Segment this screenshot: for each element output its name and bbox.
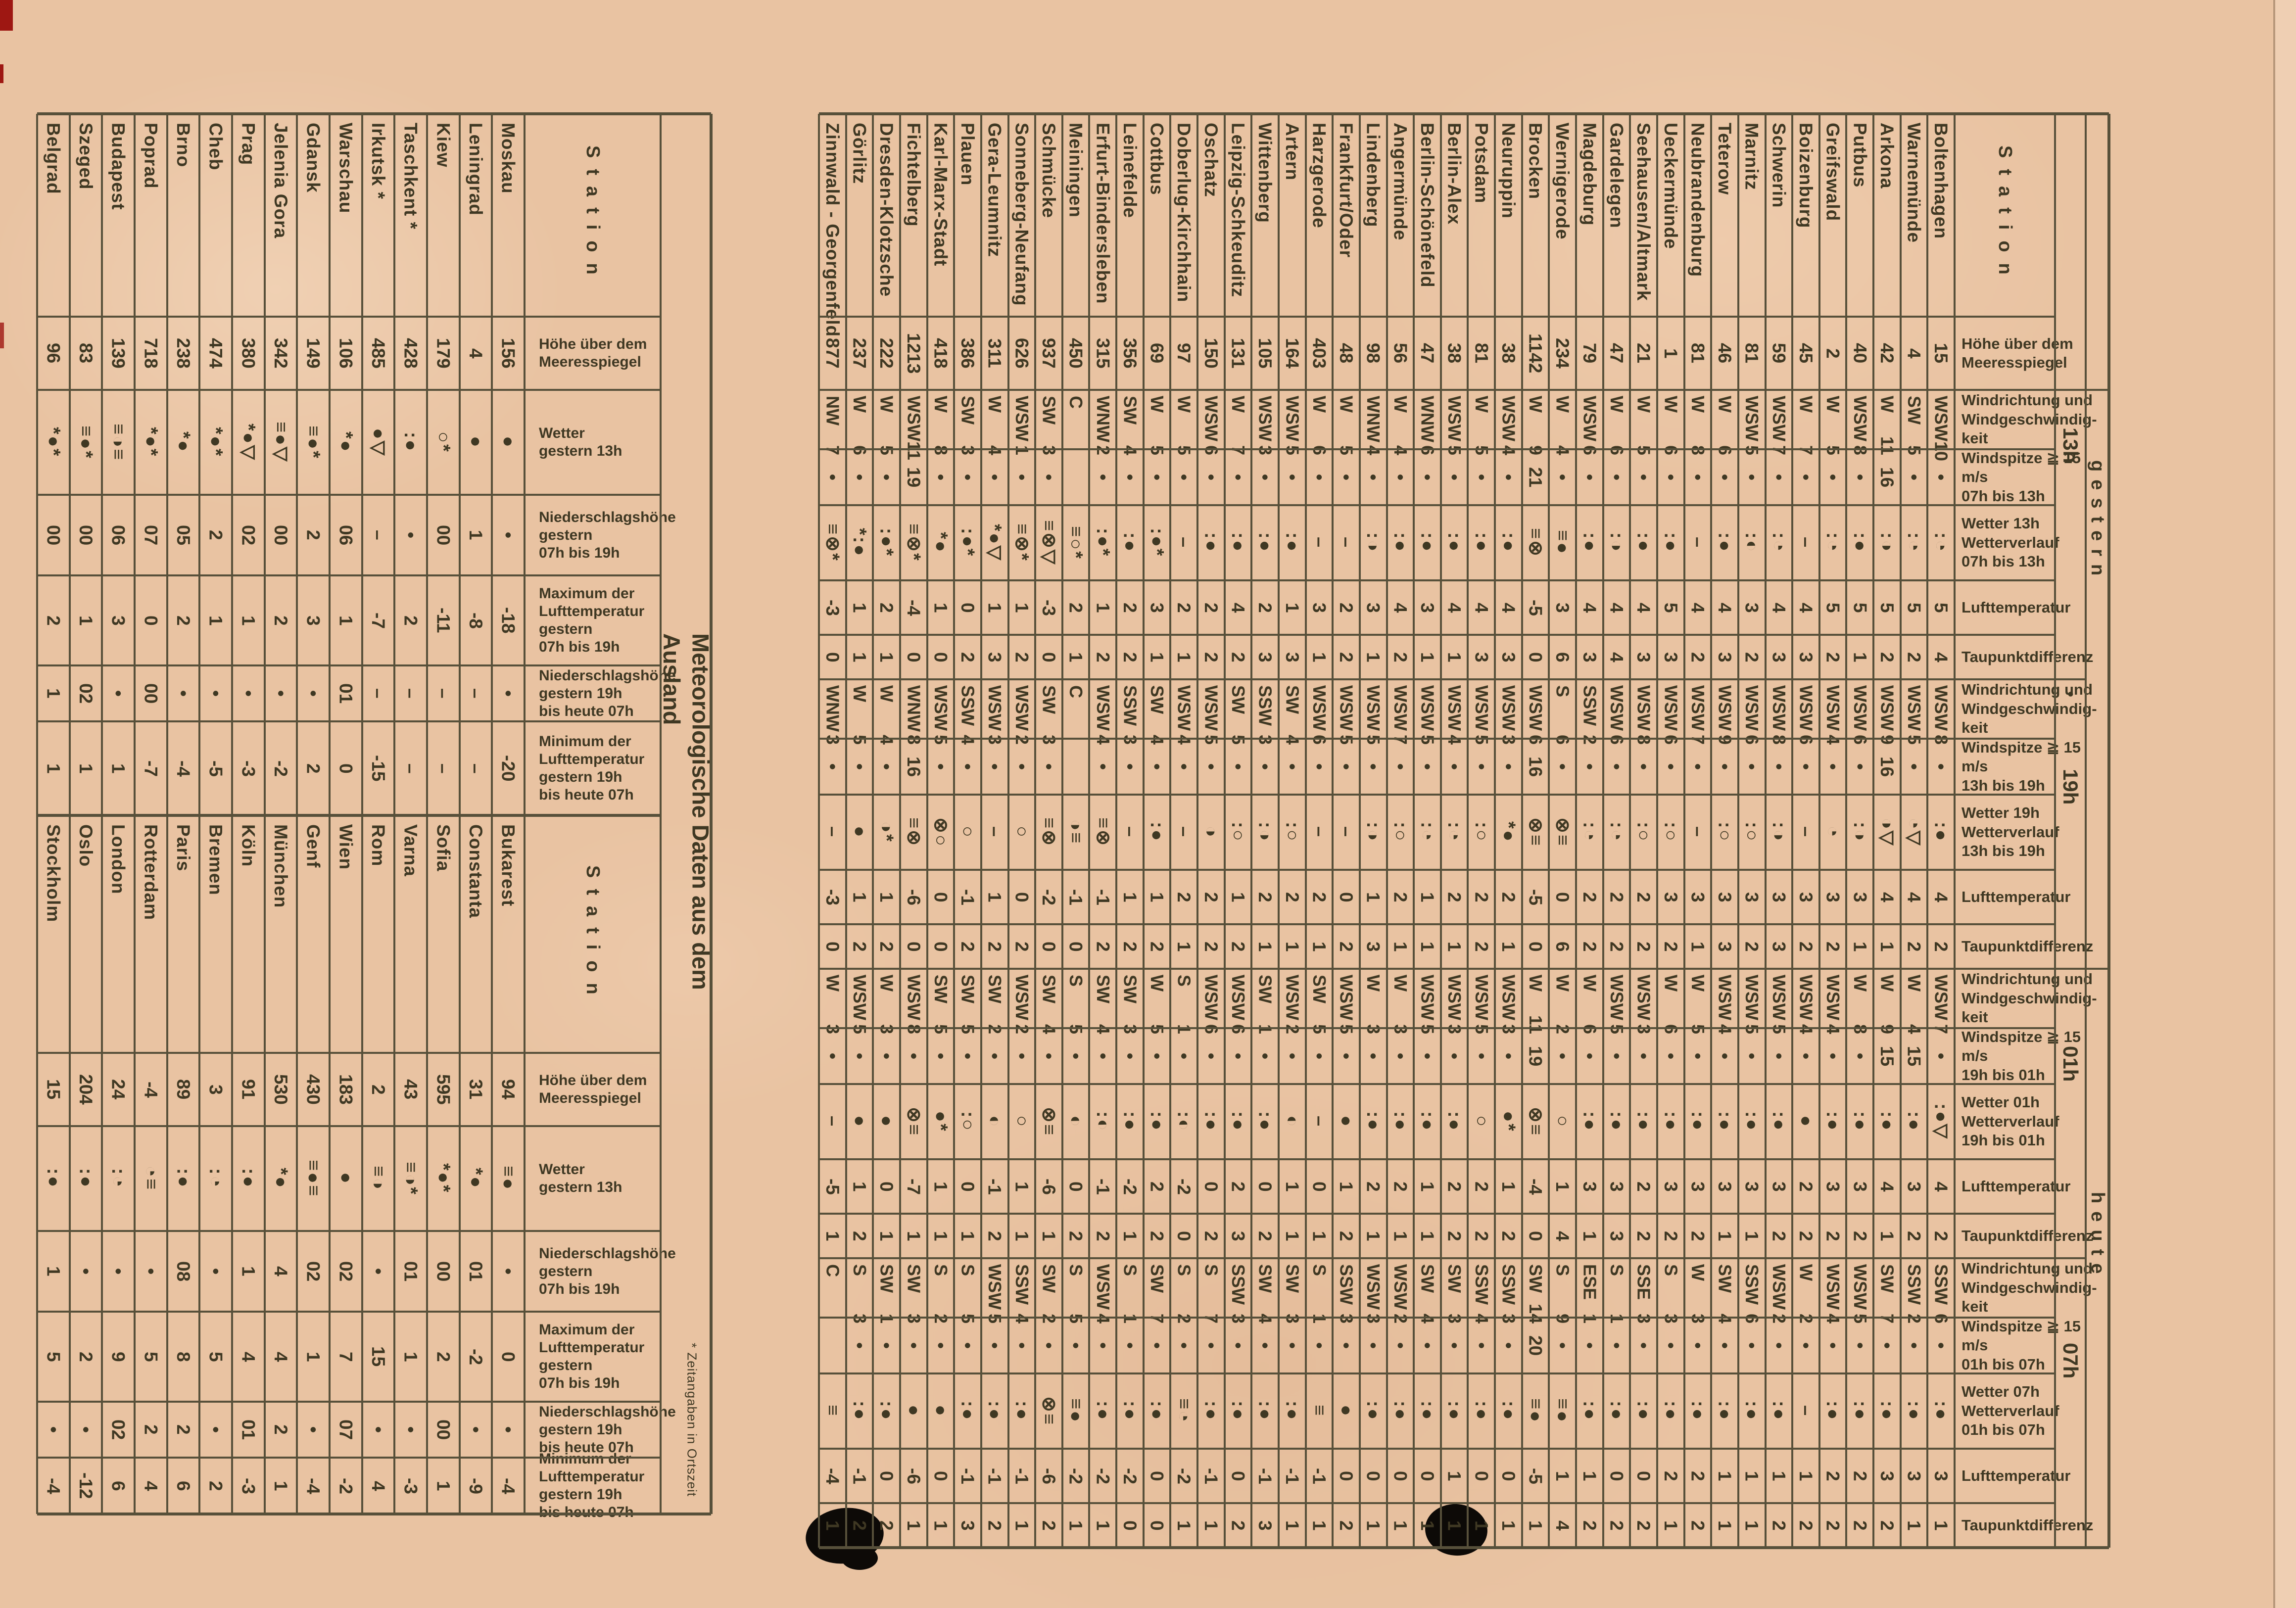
- data-cell-taupunktdifferenz: 2: [1089, 924, 1116, 969]
- data-cell-lufttemperatur: 1: [1089, 580, 1116, 635]
- foreign-hoehe-label-lower: Höhe über dem Meeresspiegel: [532, 1053, 661, 1126]
- data-cell-lufttemperatur: 1: [927, 1159, 955, 1214]
- data-cell-windspitze: •: [1225, 739, 1252, 795]
- data-cell-wetter: ≡◑*: [394, 1126, 427, 1231]
- data-cell-wetter: :○: [954, 1084, 981, 1159]
- data-cell-windspitze: •: [1251, 1028, 1279, 1084]
- grid-line-h: [37, 1052, 661, 1054]
- data-cell-taupunktdifferenz: 1: [1008, 1214, 1036, 1258]
- station-name: Magdeburg: [1576, 114, 1603, 326]
- wind-direction: W: [1229, 396, 1247, 413]
- data-cell-taupunktdifferenz: 1: [927, 1214, 955, 1258]
- grid-line-h: [819, 448, 2055, 450]
- wind-direction: WSW: [1391, 685, 1409, 731]
- data-cell-niederschlag-1907: •: [70, 1402, 102, 1458]
- data-cell-windspitze: •: [1630, 739, 1657, 795]
- station-name: Doberlug-Kirchhain: [1170, 114, 1197, 326]
- wind-direction: WSW: [1013, 685, 1031, 731]
- grid-line-h: [2055, 1257, 2086, 1259]
- group-dot: •: [2055, 679, 2086, 709]
- data-cell-wetter: :●: [981, 1373, 1008, 1449]
- wind-direction: WSW: [1310, 685, 1328, 731]
- wind-direction: WSW: [1716, 685, 1734, 731]
- data-cell-lufttemperatur: 2: [1495, 870, 1522, 924]
- data-cell-windspitze: •: [1089, 739, 1116, 795]
- data-cell-lufttemperatur: -2: [1170, 1159, 1197, 1214]
- data-cell-hoehe: 595: [427, 1053, 460, 1126]
- wind-direction: SW: [1094, 975, 1112, 1003]
- wind-direction: WSW: [1338, 975, 1355, 1020]
- data-cell-wetter: ≡◑≡: [102, 390, 135, 495]
- data-cell-windspitze: •: [1495, 1318, 1522, 1373]
- wind-direction: WSW: [1338, 685, 1355, 731]
- data-cell-wetter: :○: [1225, 795, 1252, 870]
- data-cell-niederschlag-0719: 02: [330, 1231, 362, 1312]
- data-cell-wetter: ◔▽: [1901, 795, 1928, 870]
- data-cell-wetter: –: [1792, 795, 1819, 870]
- data-cell-taupunktdifferenz: 2: [1630, 924, 1657, 969]
- data-cell-windspitze: •: [1819, 1028, 1847, 1084]
- station-name: Rom: [362, 815, 395, 1062]
- data-cell-taupunktdifferenz: 3: [1711, 635, 1738, 679]
- data-cell-wetter: –: [1684, 505, 1712, 580]
- data-cell-lufttemperatur: 2: [1306, 870, 1333, 924]
- data-cell-windspitze: •: [1766, 449, 1793, 505]
- data-cell-taupunktdifferenz: 2: [1766, 1503, 1793, 1548]
- data-cell-taupunktdifferenz: 1: [1279, 1214, 1306, 1258]
- grid-line-v: [1548, 114, 1550, 1548]
- station-name: Potsdam: [1468, 114, 1495, 326]
- data-cell-windspitze: 16: [1522, 739, 1549, 795]
- data-cell-windspitze: •: [1360, 739, 1387, 795]
- data-cell-taupunktdifferenz: 2: [1738, 635, 1766, 679]
- data-cell-wetter: :●: [1901, 1373, 1928, 1449]
- wind-direction: WSW: [1824, 975, 1842, 1020]
- data-cell-taupunktdifferenz: 1: [873, 635, 900, 679]
- data-cell-niederschlag-0719: 00: [427, 1231, 460, 1312]
- grid-line-h: [37, 1457, 661, 1459]
- data-cell-taupunktdifferenz: 0: [819, 924, 846, 969]
- wind-direction: W: [1148, 975, 1166, 992]
- wind-direction: SSW: [1743, 1264, 1761, 1305]
- data-cell-wetter: :◔: [1441, 795, 1468, 870]
- data-cell-wetter: :●: [1576, 1084, 1603, 1159]
- wind-direction: W: [1473, 396, 1490, 413]
- data-cell-lufttemperatur: -6: [900, 870, 927, 924]
- data-cell-lufttemperatur: 0: [1062, 1159, 1090, 1214]
- data-cell-taupunktdifferenz: 2: [1251, 1214, 1279, 1258]
- data-cell-niederschlag-1907: 2: [135, 1402, 167, 1458]
- wind-direction: WSW: [1716, 975, 1734, 1020]
- wind-direction: WSW: [1851, 1264, 1869, 1310]
- wind-direction: SW: [1527, 1264, 1544, 1293]
- data-cell-taupunktdifferenz: 1: [1062, 1503, 1090, 1548]
- data-cell-taupunktdifferenz: 0: [1062, 924, 1090, 969]
- data-cell-taupunktdifferenz: 0: [900, 924, 927, 969]
- wind-direction: W: [1148, 396, 1166, 413]
- data-cell-windspitze: •: [1766, 1318, 1793, 1373]
- grid-line-v: [1386, 114, 1388, 1548]
- data-cell-hoehe: 69: [1144, 317, 1171, 390]
- data-cell-lufttemperatur: -4: [1522, 1159, 1549, 1214]
- wind-direction: WSW: [905, 975, 922, 1020]
- data-cell-niederschlag-0719: •: [70, 1231, 102, 1312]
- data-cell-wetter: ●: [846, 795, 873, 870]
- data-cell-taupunktdifferenz: 1: [1901, 1503, 1928, 1548]
- data-cell-wetter: ◑*: [873, 795, 900, 870]
- data-cell-hoehe: 38: [1495, 317, 1522, 390]
- data-cell-niederschlag-1907: •: [492, 1402, 525, 1458]
- data-cell-lufttemperatur: 1: [1360, 870, 1387, 924]
- foreign-station-header-upper: Station: [525, 119, 661, 312]
- data-cell-wetter: ◑: [1197, 795, 1225, 870]
- data-cell-wetter: –: [1684, 795, 1712, 870]
- data-cell-wetter: *●: [927, 505, 955, 580]
- data-cell-wetter: :●*: [1144, 505, 1171, 580]
- data-cell-taupunktdifferenz: 2: [1225, 635, 1252, 679]
- data-cell-lufttemperatur: 1: [846, 580, 873, 635]
- data-cell-lufttemperatur: 1: [927, 580, 955, 635]
- data-cell-windspitze: •: [1495, 739, 1522, 795]
- data-cell-niederschlag-0719: 1: [460, 495, 492, 575]
- data-cell-taupunktdifferenz: 1: [1360, 635, 1387, 679]
- page-canvas: Station Höhe über dem Meeresspiegel Wind…: [0, 0, 2296, 1608]
- data-cell-windspitze: 20: [1522, 1318, 1549, 1373]
- data-cell-hoehe: 48: [1333, 317, 1360, 390]
- data-cell-windspitze: •: [1035, 1028, 1062, 1084]
- data-cell-wetter: –: [1116, 795, 1144, 870]
- data-cell-minimum: -7: [135, 721, 167, 815]
- data-cell-lufttemperatur: 2: [1630, 870, 1657, 924]
- data-cell-windspitze: •: [1251, 449, 1279, 505]
- data-cell-taupunktdifferenz: 1: [1360, 1214, 1387, 1258]
- data-cell-lufttemperatur: 2: [1225, 1159, 1252, 1214]
- data-cell-lufttemperatur: 4: [1684, 580, 1712, 635]
- grid-line-v: [1224, 114, 1226, 1548]
- grid-line-h: [819, 1546, 2109, 1549]
- wind-direction: WSW: [1608, 685, 1626, 731]
- data-cell-hoehe: 4: [1901, 317, 1928, 390]
- data-cell-windspitze: •: [819, 739, 846, 795]
- data-cell-wetter: :●: [1279, 1373, 1306, 1449]
- data-cell-taupunktdifferenz: 2: [1062, 1214, 1090, 1258]
- data-cell-taupunktdifferenz: 2: [1333, 1503, 1360, 1548]
- data-cell-wetter: ≡⊗: [900, 795, 927, 870]
- wind-direction: WSW: [1283, 975, 1301, 1020]
- data-cell-lufttemperatur: -1: [1251, 1449, 1279, 1503]
- foreign-niederschlag1-label-lower: Niederschlagshöhe gestern 07h bis 19h: [532, 1231, 661, 1312]
- data-cell-taupunktdifferenz: 3: [1766, 635, 1793, 679]
- data-cell-maximum: 1: [199, 575, 232, 665]
- data-cell-wetter: ◐: [1062, 1084, 1090, 1159]
- footnote-ortszeit: * Zeitangaben in Ortszeit: [673, 1331, 711, 1509]
- data-cell-hoehe: 81: [1468, 317, 1495, 390]
- data-cell-windspitze: •: [1819, 449, 1847, 505]
- data-cell-windspitze: •: [1738, 1318, 1766, 1373]
- data-cell-lufttemperatur: -4: [900, 580, 927, 635]
- data-cell-lufttemperatur: -5: [1522, 580, 1549, 635]
- data-cell-lufttemperatur: -2: [1062, 1449, 1090, 1503]
- data-cell-windspitze: •: [954, 449, 981, 505]
- data-cell-taupunktdifferenz: 1: [1170, 635, 1197, 679]
- data-cell-lufttemperatur: 2: [873, 580, 900, 635]
- data-cell-taupunktdifferenz: 4: [1603, 635, 1630, 679]
- data-cell-lufttemperatur: 0: [873, 1159, 900, 1214]
- data-cell-windspitze: •: [1738, 739, 1766, 795]
- data-cell-taupunktdifferenz: 6: [1549, 924, 1576, 969]
- data-cell-niederschlag-0719: 1: [37, 1231, 70, 1312]
- data-cell-minimum: -4: [297, 1458, 330, 1514]
- data-cell-windspitze: •: [1089, 1028, 1116, 1084]
- grid-line-v: [899, 114, 901, 1548]
- data-cell-niederschlag-0719: 06: [102, 495, 135, 575]
- wind-direction: S: [1202, 1264, 1220, 1276]
- data-cell-niederschlag-0719: 01: [394, 1231, 427, 1312]
- wind-direction: WSW: [1391, 1264, 1409, 1310]
- data-cell-wetter: :●: [1387, 505, 1414, 580]
- data-cell-wetter: :◔: [1901, 505, 1928, 580]
- data-cell-taupunktdifferenz: 2: [1630, 1503, 1657, 1548]
- data-cell-wetter: :●: [1873, 1084, 1901, 1159]
- grid-line-h: [819, 1027, 2055, 1029]
- data-cell-wetter: :●: [1684, 1084, 1712, 1159]
- data-cell-taupunktdifferenz: 0: [1522, 1214, 1549, 1258]
- wind-direction: C: [1067, 685, 1085, 698]
- grid-line-h: [37, 316, 661, 318]
- foreign-hoehe-label-upper: Höhe über dem Meeresspiegel: [532, 317, 661, 390]
- data-cell-taupunktdifferenz: 2: [1630, 1214, 1657, 1258]
- data-cell-wetter: :●: [1630, 505, 1657, 580]
- data-cell-minimum: 1: [427, 1458, 460, 1514]
- data-cell-wetter: :●: [394, 390, 427, 495]
- station-name: Plauen: [954, 114, 981, 326]
- grid-line-h: [819, 869, 2055, 871]
- data-cell-maximum: 4: [265, 1312, 297, 1402]
- data-cell-taupunktdifferenz: 1: [927, 1503, 955, 1548]
- data-cell-windspitze: •: [1630, 449, 1657, 505]
- grid-line-v: [1926, 114, 1928, 1548]
- grid-line-v: [1359, 114, 1361, 1548]
- data-cell-windspitze: •: [1846, 1028, 1873, 1084]
- data-cell-wetter: *●: [460, 1126, 492, 1231]
- data-cell-lufttemperatur: -1: [1089, 870, 1116, 924]
- data-cell-lufttemperatur: 5: [1819, 580, 1847, 635]
- data-cell-taupunktdifferenz: 2: [1819, 635, 1847, 679]
- station-name: Gdansk: [297, 114, 330, 326]
- data-cell-wetter: :●: [1630, 1373, 1657, 1449]
- data-cell-lufttemperatur: 0: [1495, 1449, 1522, 1503]
- data-cell-lufttemperatur: 2: [1333, 580, 1360, 635]
- data-cell-wetter: *●*: [37, 390, 70, 495]
- data-cell-lufttemperatur: -2: [1116, 1159, 1144, 1214]
- wind-direction: SSW: [1229, 1264, 1247, 1305]
- data-cell-lufttemperatur: 3: [1657, 870, 1684, 924]
- data-cell-windspitze: •: [1468, 1028, 1495, 1084]
- group-label-07h: 07h: [2055, 1296, 2086, 1425]
- data-cell-taupunktdifferenz: 1: [1116, 1214, 1144, 1258]
- wind-direction: WSW: [1932, 685, 1950, 731]
- grid-line-v: [1656, 114, 1658, 1548]
- data-cell-wetter: ≡●≡: [297, 1126, 330, 1231]
- data-cell-wetter: ≡: [819, 1373, 846, 1449]
- data-cell-lufttemperatur: 4: [1495, 580, 1522, 635]
- data-cell-niederschlag-0719: 02: [232, 495, 265, 575]
- grid-line-v: [926, 114, 928, 1548]
- station-name: Berlin-Alex: [1441, 114, 1468, 326]
- data-cell-wetter: :●: [1468, 505, 1495, 580]
- data-cell-taupunktdifferenz: 2: [1792, 1503, 1819, 1548]
- wind-direction: WSW: [1851, 396, 1869, 441]
- data-cell-minimum: -20: [492, 721, 525, 815]
- grid-line-v: [2107, 114, 2110, 1548]
- data-cell-wetter: :●: [70, 1126, 102, 1231]
- data-cell-taupunktdifferenz: 0: [1035, 635, 1062, 679]
- data-cell-niederschlag-1907: 00: [135, 665, 167, 721]
- data-cell-wetter: :●: [1144, 795, 1171, 870]
- data-cell-hoehe: 91: [232, 1053, 265, 1126]
- data-cell-niederschlag-0719: 1: [232, 1231, 265, 1312]
- wind-direction: SW: [1283, 685, 1301, 714]
- data-cell-windspitze: •: [927, 1318, 955, 1373]
- data-cell-windspitze: •: [1197, 1318, 1225, 1373]
- data-cell-hoehe: 342: [265, 317, 297, 390]
- data-cell-lufttemperatur: 2: [1197, 870, 1225, 924]
- data-cell-wetter: ≡⊗▽: [1035, 505, 1062, 580]
- wind-direction: W: [1175, 396, 1193, 413]
- data-cell-wetter: :●: [232, 1126, 265, 1231]
- data-cell-taupunktdifferenz: 1: [1522, 1503, 1549, 1548]
- data-cell-wetter: :●: [1766, 1084, 1793, 1159]
- grid-line-v: [2054, 114, 2056, 1548]
- data-cell-hoehe: 89: [167, 1053, 200, 1126]
- foreign-niederschlag2-label-lower: Niederschlagshöhe gestern 19h bis heute …: [532, 1402, 661, 1458]
- data-cell-windspitze: •: [846, 1318, 873, 1373]
- wind-direction: WSW: [1608, 975, 1626, 1020]
- data-cell-minimum: 1: [70, 721, 102, 815]
- data-cell-taupunktdifferenz: 1: [1576, 1214, 1603, 1258]
- wind-direction: S: [1608, 1264, 1626, 1276]
- data-cell-wetter: :○: [1468, 795, 1495, 870]
- data-cell-taupunktdifferenz: 3: [1657, 635, 1684, 679]
- wind-direction: SW: [1445, 1264, 1463, 1293]
- wind-direction: SW: [1878, 1264, 1896, 1293]
- data-cell-wetter: –: [1792, 1373, 1819, 1449]
- data-cell-wetter: :◔: [1766, 505, 1793, 580]
- data-cell-wetter: *●▽: [232, 390, 265, 495]
- wind-direction: WSW: [1743, 396, 1761, 441]
- wind-direction: SSW: [1932, 1264, 1950, 1305]
- data-cell-lufttemperatur: 0: [1333, 1449, 1360, 1503]
- data-cell-taupunktdifferenz: 0: [819, 635, 846, 679]
- wind-direction: W: [1635, 396, 1653, 413]
- data-cell-wetter: ●: [1333, 1373, 1360, 1449]
- data-cell-windspitze: •: [1468, 1318, 1495, 1373]
- grid-line-h: [819, 794, 2055, 796]
- data-cell-lufttemperatur: 1: [846, 870, 873, 924]
- data-cell-niederschlag-0719: 08: [167, 1231, 200, 1312]
- data-cell-windspitze: •: [1549, 449, 1576, 505]
- data-cell-windspitze: •: [900, 1318, 927, 1373]
- data-cell-wetter: :●: [1603, 1084, 1630, 1159]
- data-cell-windspitze: •: [1279, 449, 1306, 505]
- data-cell-wetter: :●: [1251, 505, 1279, 580]
- data-cell-niederschlag-0719: 2: [199, 495, 232, 575]
- data-cell-windspitze: •: [873, 1318, 900, 1373]
- grid-line-h: [2055, 389, 2086, 391]
- data-cell-windspitze: •: [1603, 1028, 1630, 1084]
- data-cell-lufttemperatur: -1: [1062, 870, 1090, 924]
- data-cell-windspitze: •: [1819, 739, 1847, 795]
- data-cell-windspitze: •: [1441, 449, 1468, 505]
- station-name: Schwerin: [1766, 114, 1793, 326]
- data-cell-taupunktdifferenz: 2: [954, 924, 981, 969]
- data-cell-taupunktdifferenz: 0: [1522, 635, 1549, 679]
- data-cell-taupunktdifferenz: 2: [846, 924, 873, 969]
- data-cell-taupunktdifferenz: 2: [1116, 635, 1144, 679]
- data-cell-wetter: *:●: [846, 505, 873, 580]
- grid-line-h: [819, 1502, 2055, 1504]
- wind-direction: WSW: [1499, 396, 1517, 441]
- wind-direction: WNW: [1364, 396, 1382, 442]
- wind-direction: S: [1067, 1264, 1085, 1276]
- data-cell-wetter: :●: [1711, 1084, 1738, 1159]
- wind-direction: W: [1851, 975, 1869, 992]
- data-cell-taupunktdifferenz: 2: [1873, 1503, 1901, 1548]
- data-cell-wetter: :●: [1225, 1373, 1252, 1449]
- data-cell-hoehe: 937: [1035, 317, 1062, 390]
- data-cell-hoehe: 164: [1279, 317, 1306, 390]
- data-cell-minimum: 2: [199, 1458, 232, 1514]
- data-cell-hoehe: 47: [1603, 317, 1630, 390]
- wind-direction: SW: [1256, 975, 1274, 1003]
- data-cell-windspitze: •: [1170, 449, 1197, 505]
- wind-direction: WSW: [986, 685, 1004, 731]
- wind-direction: SSW: [959, 685, 977, 726]
- data-cell-windspitze: •: [1116, 449, 1144, 505]
- station-name: Neubrandenburg: [1684, 114, 1712, 326]
- data-cell-minimum: -12: [70, 1458, 102, 1514]
- data-cell-windspitze: •: [1279, 1318, 1306, 1373]
- data-cell-wetter: :●: [1846, 1084, 1873, 1159]
- data-cell-taupunktdifferenz: 1: [1873, 1214, 1901, 1258]
- data-cell-lufttemperatur: 2: [1170, 580, 1197, 635]
- data-cell-wetter: ○*: [427, 390, 460, 495]
- data-cell-lufttemperatur: 4: [1766, 580, 1793, 635]
- data-cell-niederschlag-0719: 06: [330, 495, 362, 575]
- data-cell-lufttemperatur: 3: [1819, 1159, 1847, 1214]
- data-cell-windspitze: •: [1035, 449, 1062, 505]
- wind-direction: WSW: [1797, 975, 1815, 1020]
- data-cell-windspitze: •: [1549, 1028, 1576, 1084]
- data-cell-taupunktdifferenz: 1: [1306, 1503, 1333, 1548]
- data-cell-wetter: ○: [1008, 795, 1036, 870]
- data-cell-taupunktdifferenz: 1: [1873, 924, 1901, 969]
- data-cell-hoehe: 98: [1360, 317, 1387, 390]
- data-cell-wetter: :◔: [1819, 505, 1847, 580]
- data-cell-windspitze: •: [1089, 1318, 1116, 1373]
- data-cell-lufttemperatur: 4: [1873, 870, 1901, 924]
- data-cell-windspitze: •: [1144, 739, 1171, 795]
- data-cell-minimum: -9: [460, 1458, 492, 1514]
- data-cell-taupunktdifferenz: 1: [1360, 1503, 1387, 1548]
- data-cell-windspitze: •: [1766, 739, 1793, 795]
- grid-line-h: [819, 579, 2055, 581]
- data-cell-niederschlag-1907: •: [297, 665, 330, 721]
- data-cell-taupunktdifferenz: 1: [900, 1214, 927, 1258]
- data-cell-hoehe: 3: [199, 1053, 232, 1126]
- data-cell-lufttemperatur: -2: [1170, 1449, 1197, 1503]
- data-cell-wetter: :●: [1279, 505, 1306, 580]
